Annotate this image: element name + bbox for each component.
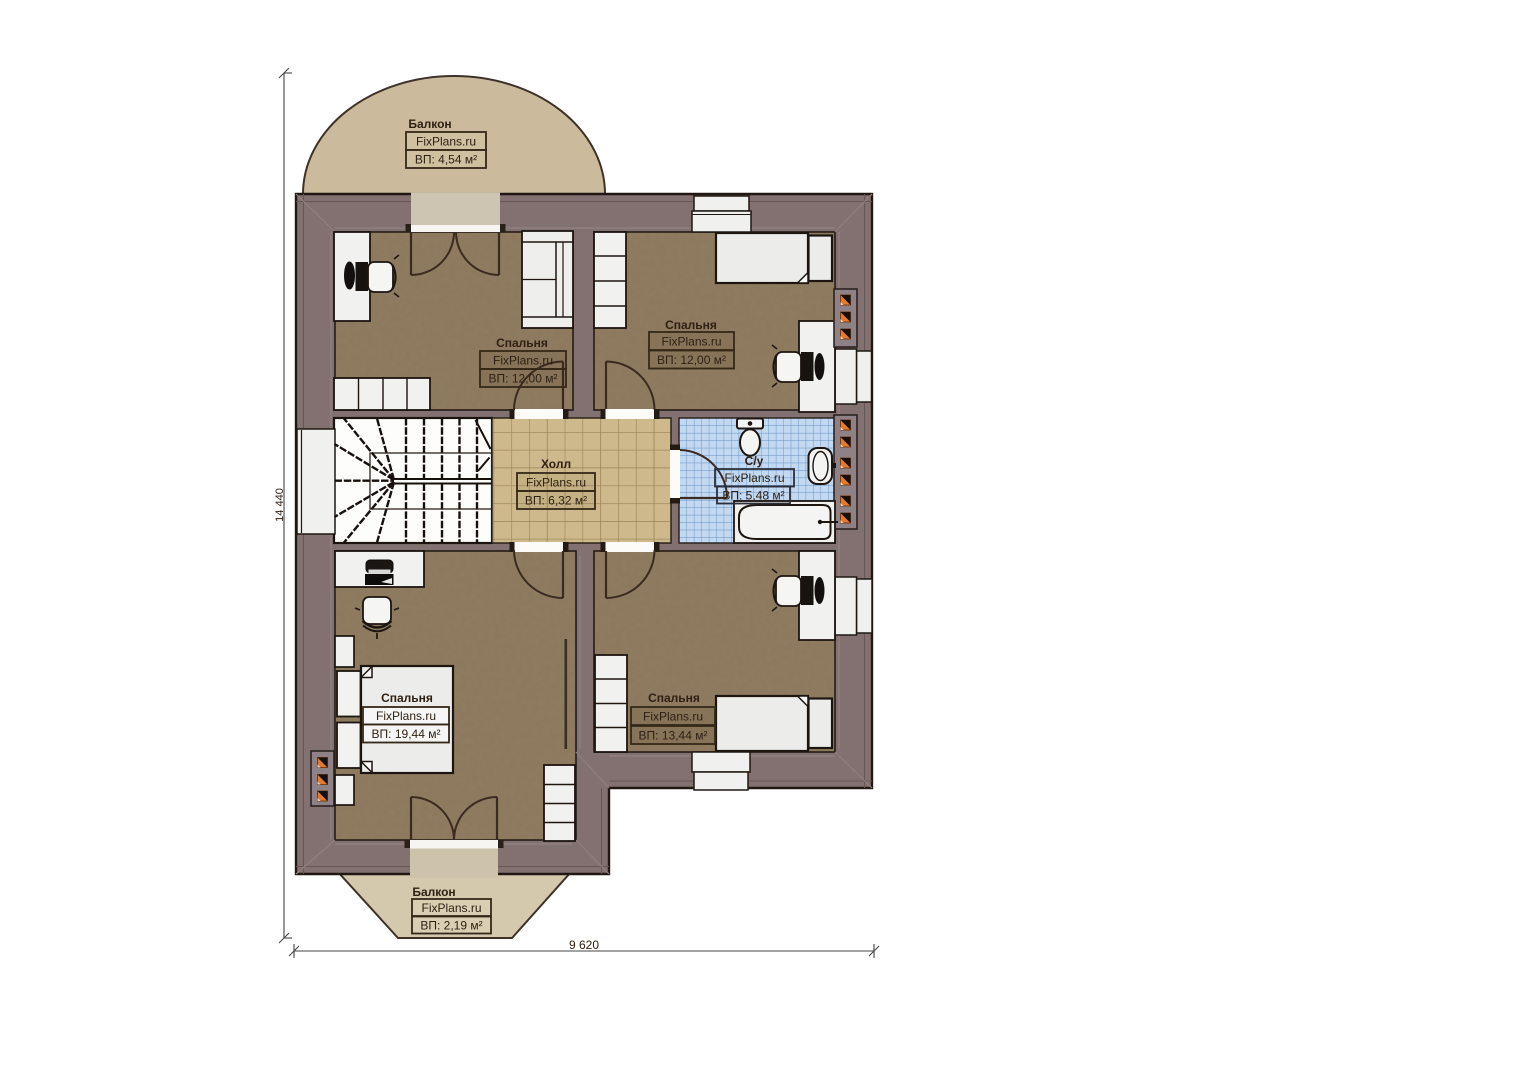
svg-text:FixPlans.ru: FixPlans.ru [724,471,784,485]
svg-text:FixPlans.ru: FixPlans.ru [661,335,721,349]
svg-text:FixPlans.ru: FixPlans.ru [416,135,476,149]
svg-text:Спальня: Спальня [496,336,548,350]
svg-text:Спальня: Спальня [665,318,717,332]
svg-text:ВП: 12,00 м²: ВП: 12,00 м² [657,353,726,367]
svg-text:ВП: 19,44 м²: ВП: 19,44 м² [372,727,441,741]
svg-text:Балкон: Балкон [412,885,455,899]
svg-text:Балкон: Балкон [408,117,451,131]
svg-text:ВП: 12,00 м²: ВП: 12,00 м² [489,372,558,386]
svg-text:FixPlans.ru: FixPlans.ru [643,710,703,724]
svg-text:Спальня: Спальня [381,691,433,705]
svg-text:FixPlans.ru: FixPlans.ru [526,476,586,490]
svg-text:С/у: С/у [745,454,764,468]
svg-text:14 440: 14 440 [274,488,286,522]
svg-text:9 620: 9 620 [569,938,599,952]
svg-text:FixPlans.ru: FixPlans.ru [421,901,481,915]
svg-text:Холл: Холл [541,457,571,471]
svg-text:FixPlans.ru: FixPlans.ru [376,709,436,723]
svg-text:ВП: 4,54 м²: ВП: 4,54 м² [415,153,477,167]
svg-text:ВП: 2,19 м²: ВП: 2,19 м² [420,919,482,933]
svg-text:Спальня: Спальня [648,691,700,705]
svg-text:ВП: 6,32 м²: ВП: 6,32 м² [525,494,587,508]
svg-text:FixPlans.ru: FixPlans.ru [493,354,553,368]
svg-text:ВП: 13,44 м²: ВП: 13,44 м² [639,729,708,743]
svg-text:ВП: 5,48 м²: ВП: 5,48 м² [722,489,784,503]
